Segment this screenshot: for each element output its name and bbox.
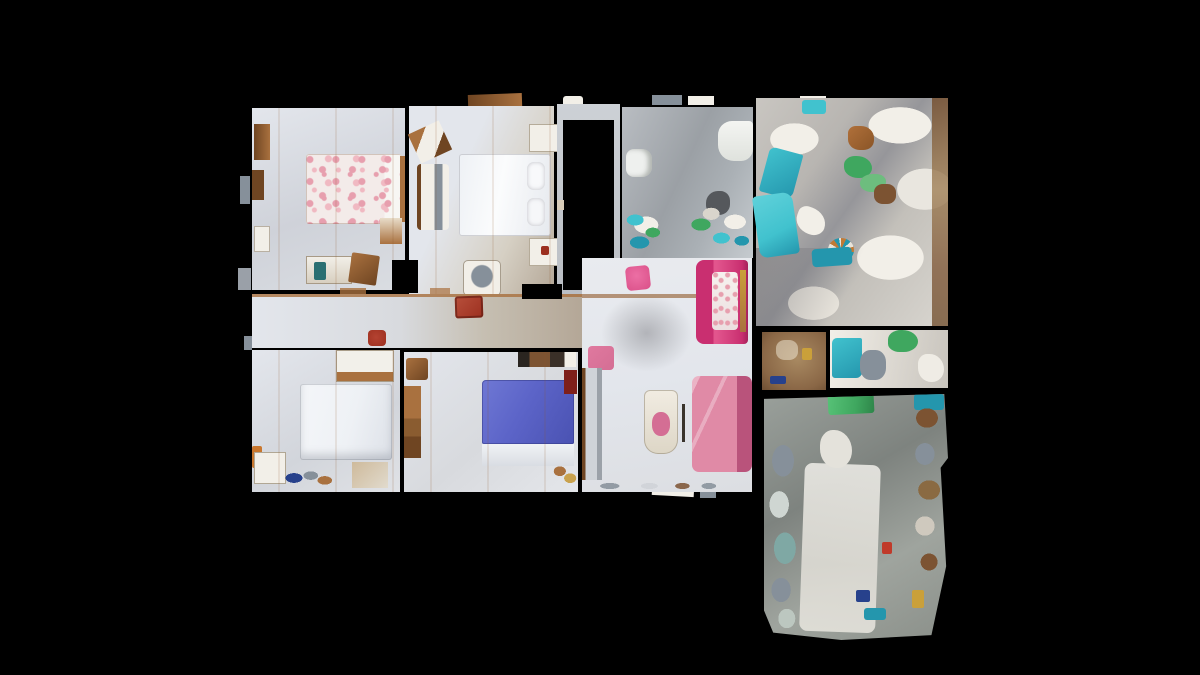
magenta-loveseat bbox=[696, 260, 748, 344]
teal-clutter bbox=[811, 247, 852, 268]
bed-headboard bbox=[400, 156, 405, 222]
room-bedroom-white bbox=[409, 106, 554, 294]
pillow bbox=[527, 198, 545, 226]
floor-lamp-pole bbox=[682, 404, 685, 442]
scan-artifact bbox=[240, 176, 250, 204]
white-clutter bbox=[918, 354, 944, 382]
door-threshold bbox=[430, 288, 450, 294]
dresser bbox=[518, 352, 576, 367]
bathtub bbox=[718, 121, 753, 161]
clutter-column bbox=[764, 438, 802, 628]
storage-shelf-strip bbox=[830, 330, 948, 388]
floorplan-canvas[interactable] bbox=[0, 0, 1200, 675]
clutter-pile bbox=[684, 203, 752, 257]
room-bedroom-blue bbox=[404, 352, 578, 492]
teal-bin bbox=[314, 262, 326, 280]
room-hallway bbox=[252, 294, 582, 348]
room-entry-closet bbox=[762, 332, 826, 390]
pink-stool bbox=[625, 265, 651, 291]
desk bbox=[306, 256, 352, 284]
wood-edge bbox=[932, 98, 948, 326]
teal-clutter bbox=[759, 146, 804, 199]
scan-artifact bbox=[688, 96, 714, 105]
pink-ottoman bbox=[588, 346, 614, 370]
wall-trim bbox=[582, 294, 698, 298]
pillow bbox=[527, 162, 545, 190]
scan-artifact bbox=[652, 95, 682, 105]
white-clutter bbox=[820, 430, 852, 468]
floor-debris bbox=[352, 462, 388, 488]
pink-garment bbox=[652, 412, 670, 436]
room-living bbox=[582, 258, 752, 492]
small-sofa bbox=[417, 164, 449, 230]
brown-clutter bbox=[848, 126, 874, 150]
pink-sofa bbox=[692, 376, 752, 472]
white-clutter bbox=[792, 204, 829, 239]
light-patch bbox=[776, 340, 798, 360]
red-object bbox=[882, 542, 892, 554]
clutter-pile bbox=[622, 205, 666, 255]
red-object bbox=[541, 246, 549, 255]
teal-clutter bbox=[802, 100, 826, 114]
ironing-board bbox=[644, 390, 678, 454]
toilet bbox=[626, 149, 652, 177]
side-table bbox=[406, 358, 428, 380]
wall-stub bbox=[522, 284, 562, 299]
clutter-strip bbox=[590, 480, 722, 492]
gray-clutter bbox=[860, 350, 886, 380]
clutter-pile bbox=[552, 460, 578, 488]
floral-double-bed bbox=[306, 154, 402, 224]
teal-object bbox=[864, 608, 886, 620]
room-bathroom bbox=[622, 107, 753, 258]
red-stool bbox=[368, 330, 386, 346]
green-blanket bbox=[828, 393, 875, 415]
yellow-object bbox=[802, 348, 812, 360]
wardrobe bbox=[404, 386, 421, 458]
clutter-column bbox=[906, 400, 948, 580]
door-handle bbox=[557, 200, 564, 210]
wall-stub bbox=[392, 260, 418, 293]
scan-artifact bbox=[244, 336, 252, 350]
teal-clutter bbox=[752, 192, 800, 259]
room-bedroom-floral bbox=[252, 108, 405, 290]
dresser bbox=[254, 124, 270, 160]
floral-cushions bbox=[712, 272, 738, 330]
room-bedroom-single bbox=[252, 350, 400, 492]
dresser-mirror bbox=[582, 368, 602, 480]
wooden-chair bbox=[408, 120, 452, 163]
blue-double-bed bbox=[482, 380, 574, 444]
scan-artifact bbox=[238, 268, 251, 290]
red-chair bbox=[455, 296, 484, 319]
room-storage-top bbox=[756, 98, 948, 326]
armchair bbox=[463, 260, 501, 296]
room-storage-bottom bbox=[764, 394, 948, 640]
shelf bbox=[252, 170, 264, 200]
nightstand bbox=[380, 218, 402, 244]
green-clutter bbox=[888, 330, 918, 352]
teal-clutter bbox=[832, 338, 862, 378]
cabinet bbox=[254, 226, 270, 252]
wood-trim bbox=[740, 270, 746, 332]
white-single-bed bbox=[300, 384, 392, 460]
clutter-pile bbox=[280, 466, 336, 490]
bench bbox=[336, 350, 394, 382]
brown-clutter bbox=[874, 184, 896, 204]
wooden-chair bbox=[348, 252, 380, 286]
blue-object bbox=[856, 590, 870, 602]
yellow-object bbox=[912, 590, 924, 608]
bed-headboard bbox=[564, 370, 577, 394]
door-threshold bbox=[340, 288, 366, 294]
blue-object bbox=[770, 376, 786, 384]
